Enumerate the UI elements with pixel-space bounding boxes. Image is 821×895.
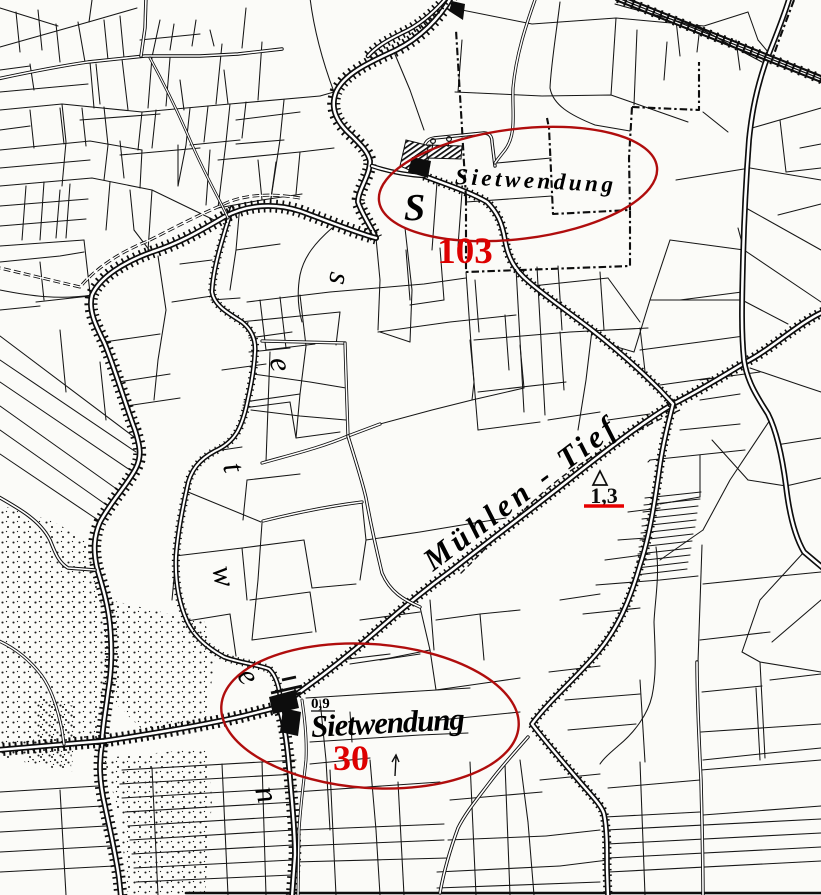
svg-text:103: 103	[437, 231, 493, 272]
svg-text:0,9: 0,9	[311, 696, 330, 712]
svg-text:30: 30	[333, 738, 369, 778]
svg-text:S: S	[404, 187, 425, 229]
